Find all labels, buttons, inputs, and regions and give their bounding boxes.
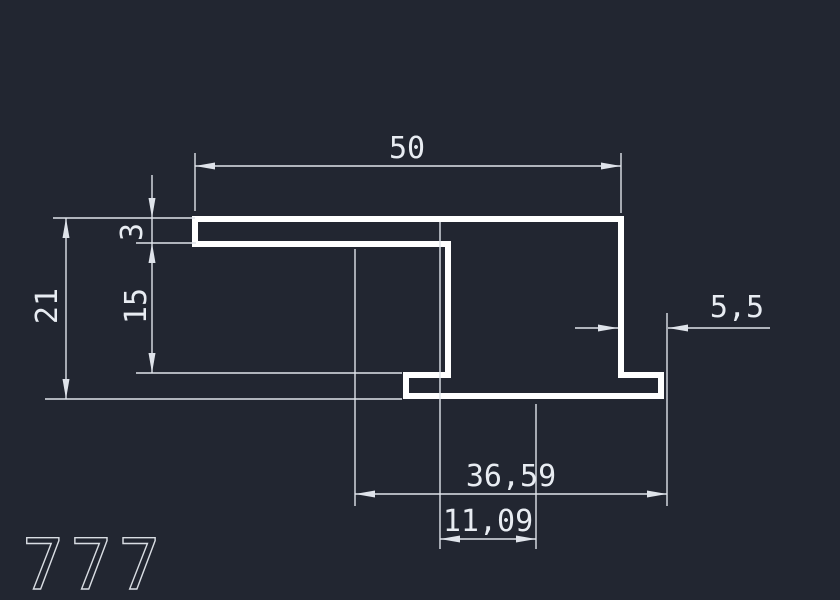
cad-canvas[interactable]: 50 3 15 21 5,5 36,59 11,09 777 bbox=[0, 0, 840, 600]
dim-label-inner-height: 15 bbox=[119, 288, 154, 324]
dim-label-bottom-width: 36,59 bbox=[466, 459, 556, 494]
dim-label-total-height: 21 bbox=[30, 288, 65, 324]
dim-label-web-offset: 11,09 bbox=[443, 504, 533, 539]
dim-label-flange-thickness: 3 bbox=[115, 223, 150, 241]
sheet-number: 777 bbox=[22, 524, 166, 600]
dim-label-top-width: 50 bbox=[389, 131, 425, 166]
cad-drawing-svg: 50 3 15 21 5,5 36,59 11,09 777 bbox=[0, 0, 840, 600]
dim-label-foot-width: 5,5 bbox=[710, 290, 764, 325]
